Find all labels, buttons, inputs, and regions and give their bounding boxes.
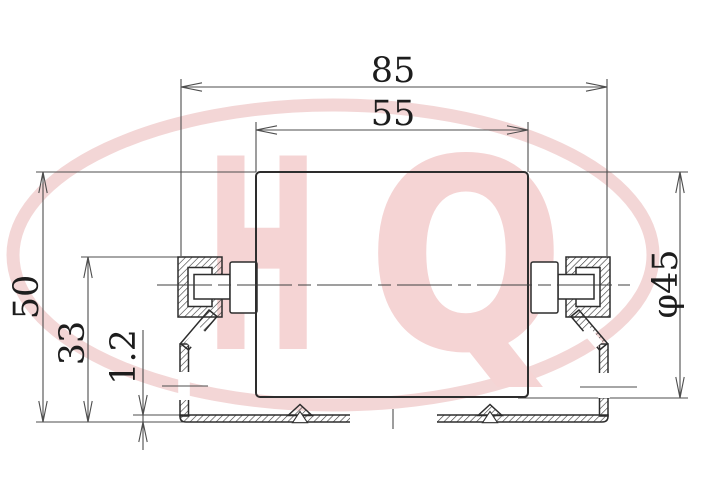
bearing-cap-left [230, 262, 257, 313]
axle-right [558, 275, 594, 300]
technical-drawing-svg: H Q [0, 0, 708, 500]
dim-rail-width-label: 85 [371, 51, 416, 91]
dim-sheet-thickness-label: 1.2 [104, 329, 144, 385]
dim-overall-height-label: 50 [7, 275, 47, 320]
dim-roller-length-label: 55 [371, 94, 416, 134]
drawing-canvas: H Q [0, 0, 708, 500]
axle-left [194, 275, 230, 300]
watermark-letter-h: H [206, 107, 318, 409]
dim-rail-edge-height-label: 33 [53, 321, 93, 366]
right-wall-hole-gap [598, 373, 610, 398]
bearing-cap-right [531, 262, 558, 313]
watermark-letter-q: Q [369, 107, 564, 409]
dim-roller-diameter-label: φ45 [646, 249, 686, 318]
